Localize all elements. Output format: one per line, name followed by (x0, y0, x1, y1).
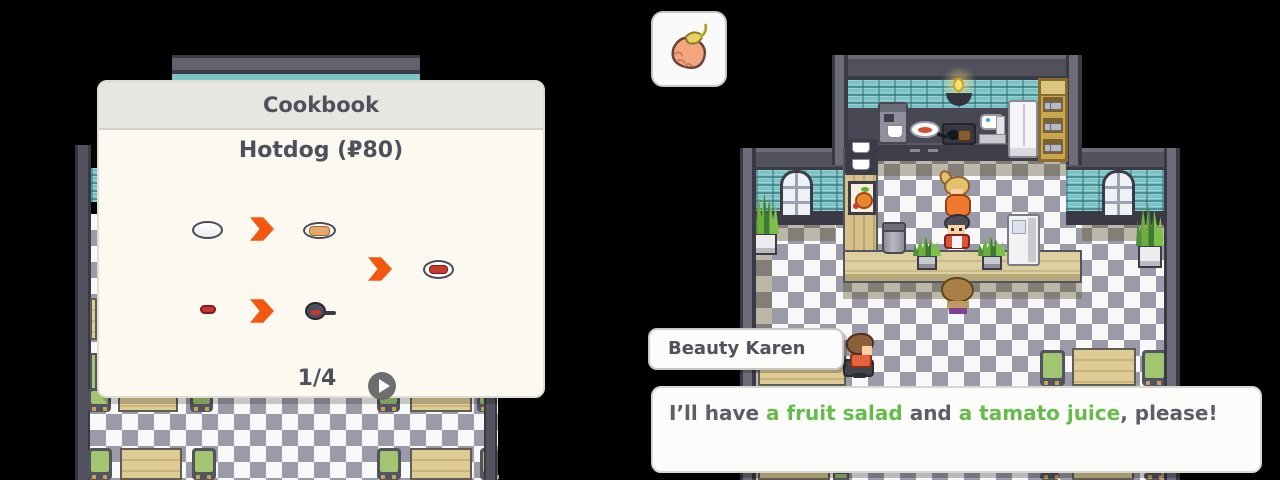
chair (1144, 472, 1162, 480)
npc-chef[interactable] (942, 214, 972, 252)
sausage-in-pan-icon (305, 302, 326, 320)
arrow-right-icon (250, 215, 274, 243)
cookbook-header: Cookbook (99, 82, 543, 130)
chair (1040, 472, 1060, 480)
berry-icon (661, 21, 717, 77)
game-screen: Cookbook Hotdog (₽80) 1/4 Beauty Karen I… (0, 0, 1280, 480)
npc-beauty-karen[interactable] (843, 333, 879, 381)
dining-table (1072, 348, 1136, 386)
chair (377, 448, 401, 480)
left-building-left-wall (75, 145, 91, 480)
dialog-text-segment: and (903, 401, 959, 425)
trash-can (882, 222, 906, 254)
coffee-machine (878, 102, 908, 144)
left-building-right-wall (484, 386, 497, 480)
dialog-text-segment: I’ll have (669, 401, 766, 425)
arrow-right-icon (250, 297, 274, 325)
sausage-icon (200, 305, 216, 314)
dialog-text-segment: , please! (1120, 401, 1217, 425)
dialog-box[interactable]: I’ll have a fruit salad and a tamato jui… (651, 386, 1262, 473)
chair-sliver (833, 472, 849, 480)
kitchen-right-wall (1066, 55, 1082, 165)
page-indicator: 1/4 (285, 366, 349, 391)
food-plate (910, 121, 940, 138)
kitchen-shadow (848, 161, 1066, 176)
table-sliver (90, 298, 97, 340)
window (780, 170, 813, 220)
dialog-text-segment: a fruit salad (766, 401, 903, 425)
mixer (978, 112, 1007, 144)
potted-plant (1136, 204, 1164, 268)
fridge (1008, 100, 1038, 158)
table (410, 448, 472, 480)
chair (88, 448, 112, 480)
stove (942, 123, 976, 145)
table (120, 448, 182, 480)
dialog-text-segment: a tamato juice (959, 401, 1120, 425)
cookbook-panel: Cookbook Hotdog (₽80) 1/4 (97, 80, 545, 398)
dough-icon (192, 221, 223, 239)
player-customer[interactable] (941, 277, 975, 314)
lightbulb-icon (953, 78, 964, 92)
arrow-right-icon (368, 255, 392, 283)
dialog-text: I’ll have a fruit salad and a tamato jui… (669, 401, 1218, 425)
hotdog-on-plate-icon (423, 260, 454, 279)
counter-plant (913, 236, 941, 270)
potted-plant (752, 192, 779, 255)
window (1102, 170, 1135, 220)
speaker-nametag: Beauty Karen (648, 328, 844, 370)
dish-shelf (1038, 78, 1068, 162)
menu-poster (848, 181, 876, 215)
counter-plant (978, 236, 1006, 270)
chair (1040, 350, 1065, 386)
held-item-slot (651, 11, 727, 87)
chair-sliver (90, 353, 97, 393)
cup-shelf (845, 139, 878, 175)
next-page-button[interactable] (368, 372, 396, 400)
left-building-roof (172, 55, 420, 80)
bun-on-plate-icon (303, 222, 336, 239)
recipe-title: Hotdog (₽80) (99, 138, 543, 163)
kitchen-drawer-handles (910, 149, 920, 152)
order-register (1007, 214, 1040, 266)
chair (192, 448, 216, 480)
